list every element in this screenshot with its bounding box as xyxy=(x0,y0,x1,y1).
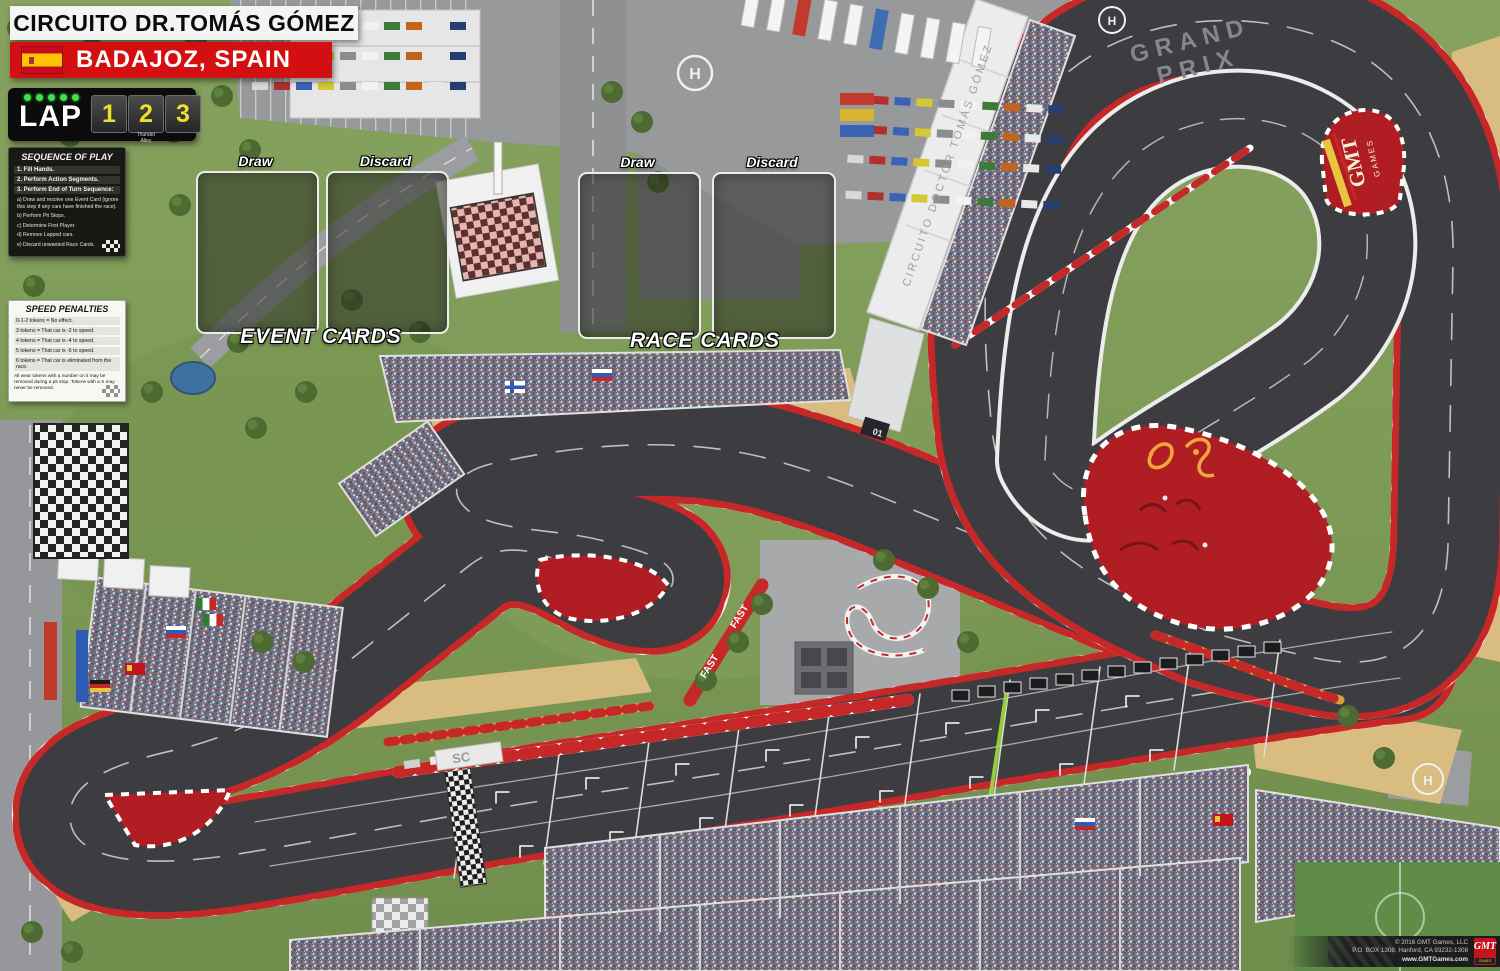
event-cards-draw-pile[interactable] xyxy=(196,171,319,334)
lap-tile-2[interactable]: 2 xyxy=(128,95,164,133)
event-cards-discard-pile[interactable] xyxy=(326,171,449,334)
event-cards-zone-label: EVENT CARDS xyxy=(196,325,446,349)
circuit-title: CIRCUITO DR.TOMÁS GÓMEZ xyxy=(13,10,355,37)
gmt-logo-subtext: GAMES xyxy=(1475,958,1495,964)
sequence-of-play-title: SEQUENCE OF PLAY xyxy=(14,152,120,162)
sequence-step: 2. Perform Action Segments. xyxy=(14,176,120,184)
copyright-text: © 2016 GMT Games, LLC P.O. BOX 1308, Han… xyxy=(1352,939,1468,964)
speed-penalty-rule: 5 tokens = That car is -6 to speed. xyxy=(14,347,120,355)
checkered-tower xyxy=(34,424,128,558)
sequence-step: 3. Perform End of Turn Sequence: xyxy=(14,186,120,194)
game-board: { "header": { "title": "CIRCUITO DR.TOMÁ… xyxy=(0,0,1500,971)
race-draw-label: Draw xyxy=(578,154,697,170)
gmt-games-logo: GMT GAMES xyxy=(1474,938,1496,965)
helipad-h-icon: H xyxy=(1423,773,1432,788)
lap-label: LAP xyxy=(19,100,82,134)
speed-penalty-rule: 3 tokens = That car is -2 to speed. xyxy=(14,327,120,335)
speed-penalties-title: SPEED PENALTIES xyxy=(14,304,120,314)
speed-penalties-panel: SPEED PENALTIES 0-1-2 tokens = No effect… xyxy=(8,300,126,402)
race-cards-zone-label: RACE CARDS xyxy=(578,329,832,353)
pond xyxy=(171,362,215,394)
sequence-substep: d) Remove Lapped cars. xyxy=(17,232,120,239)
gmt-logo-text: GMT xyxy=(1474,941,1496,952)
credits-bar: © 2016 GMT Games, LLC P.O. BOX 1308, Han… xyxy=(1288,936,1500,967)
checkered-flag-icon xyxy=(102,385,120,397)
website-line: www.GMTGames.com xyxy=(1352,956,1468,964)
circuit-title-bar: CIRCUITO DR.TOMÁS GÓMEZ xyxy=(10,6,358,40)
race-cards-draw-pile[interactable] xyxy=(578,172,701,339)
helipad-h-icon: H xyxy=(1108,14,1117,28)
speed-penalty-rule: 6 tokens = That car is eliminated from t… xyxy=(14,357,120,371)
race-cards-discard-pile[interactable] xyxy=(712,172,836,339)
tower-chimney xyxy=(494,142,502,194)
banner-tower-blue xyxy=(76,630,88,702)
lap-counter: LAP 1 2 3 Thunder Alley xyxy=(8,88,196,141)
sequence-substep: c) Determine First Player. xyxy=(17,223,120,230)
sequence-step: 1. Fill Hands. xyxy=(14,166,120,174)
banner-tower-red xyxy=(44,622,57,700)
checkered-flag-icon xyxy=(102,240,120,252)
event-discard-label: Discard xyxy=(326,153,445,169)
spain-flag-icon xyxy=(22,47,62,73)
speed-penalty-rule: 0-1-2 tokens = No effect. xyxy=(14,317,120,325)
thunder-alley-brand: Thunder Alley xyxy=(128,133,164,145)
sequence-of-play-panel: SEQUENCE OF PLAY 1. Fill Hands. 2. Perfo… xyxy=(8,147,126,257)
lap-tile-3[interactable]: 3 xyxy=(165,95,201,133)
sequence-substep: a) Draw and resolve one Event Card (igno… xyxy=(17,197,120,210)
circuit-location: BADAJOZ, SPAIN xyxy=(76,46,291,74)
address-line: P.O. BOX 1308, Hanford, CA 93232-1308 xyxy=(1352,947,1468,955)
race-discard-label: Discard xyxy=(712,154,832,170)
lap-tile-1[interactable]: 1 xyxy=(91,95,127,133)
copyright-line: © 2016 GMT Games, LLC xyxy=(1352,939,1468,947)
helipad-h-icon: H xyxy=(689,66,701,83)
circuit-map-artwork: GRAND PRIX CIRCUITO DOCTOR TOMÁS GÓMEZ F… xyxy=(0,0,1500,971)
speed-penalty-rule: 4 tokens = That car is -4 to speed. xyxy=(14,337,120,345)
safety-car-text: SC xyxy=(451,749,472,766)
sequence-substep: b) Perform Pit Stops. xyxy=(17,213,120,220)
event-draw-label: Draw xyxy=(196,153,315,169)
circuit-location-bar: BADAJOZ, SPAIN xyxy=(10,42,332,78)
